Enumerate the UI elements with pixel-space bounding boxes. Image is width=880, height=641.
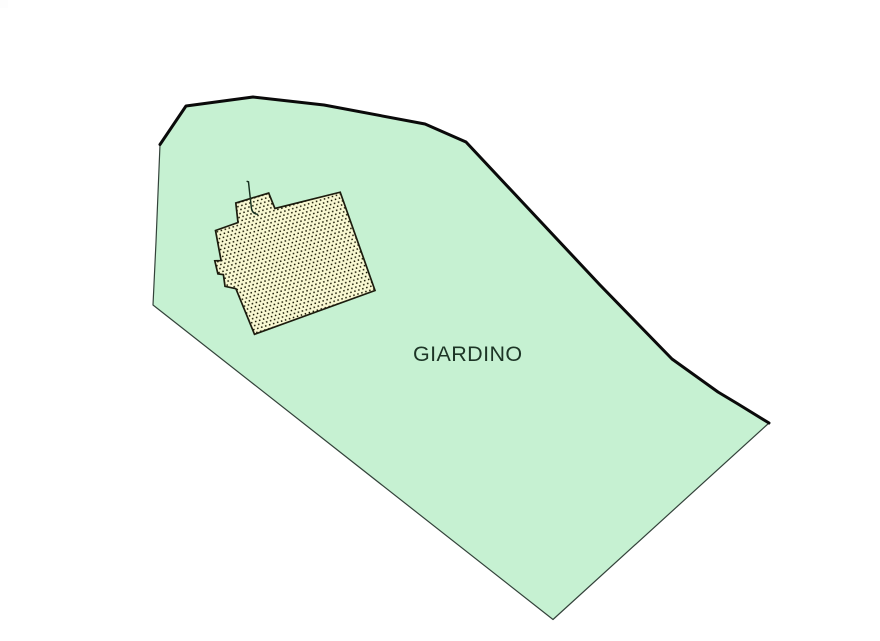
svg-text:GIARDINO: GIARDINO [413, 342, 523, 366]
